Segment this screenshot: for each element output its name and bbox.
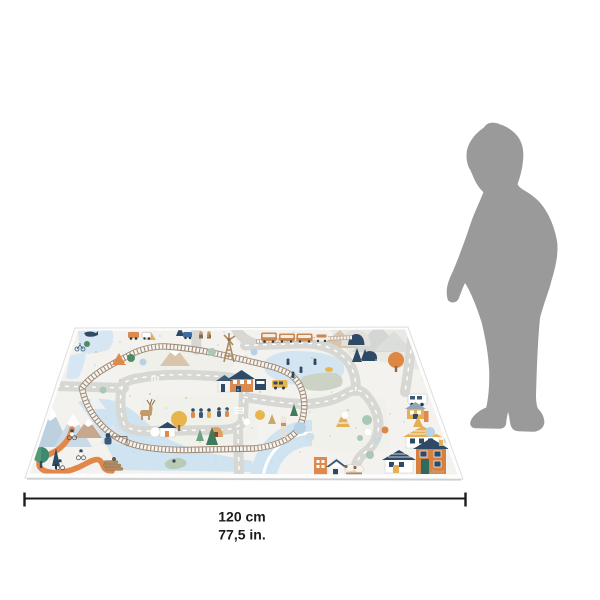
svg-text:77,5 in.: 77,5 in. bbox=[218, 527, 265, 543]
svg-text:120 cm: 120 cm bbox=[218, 509, 265, 525]
